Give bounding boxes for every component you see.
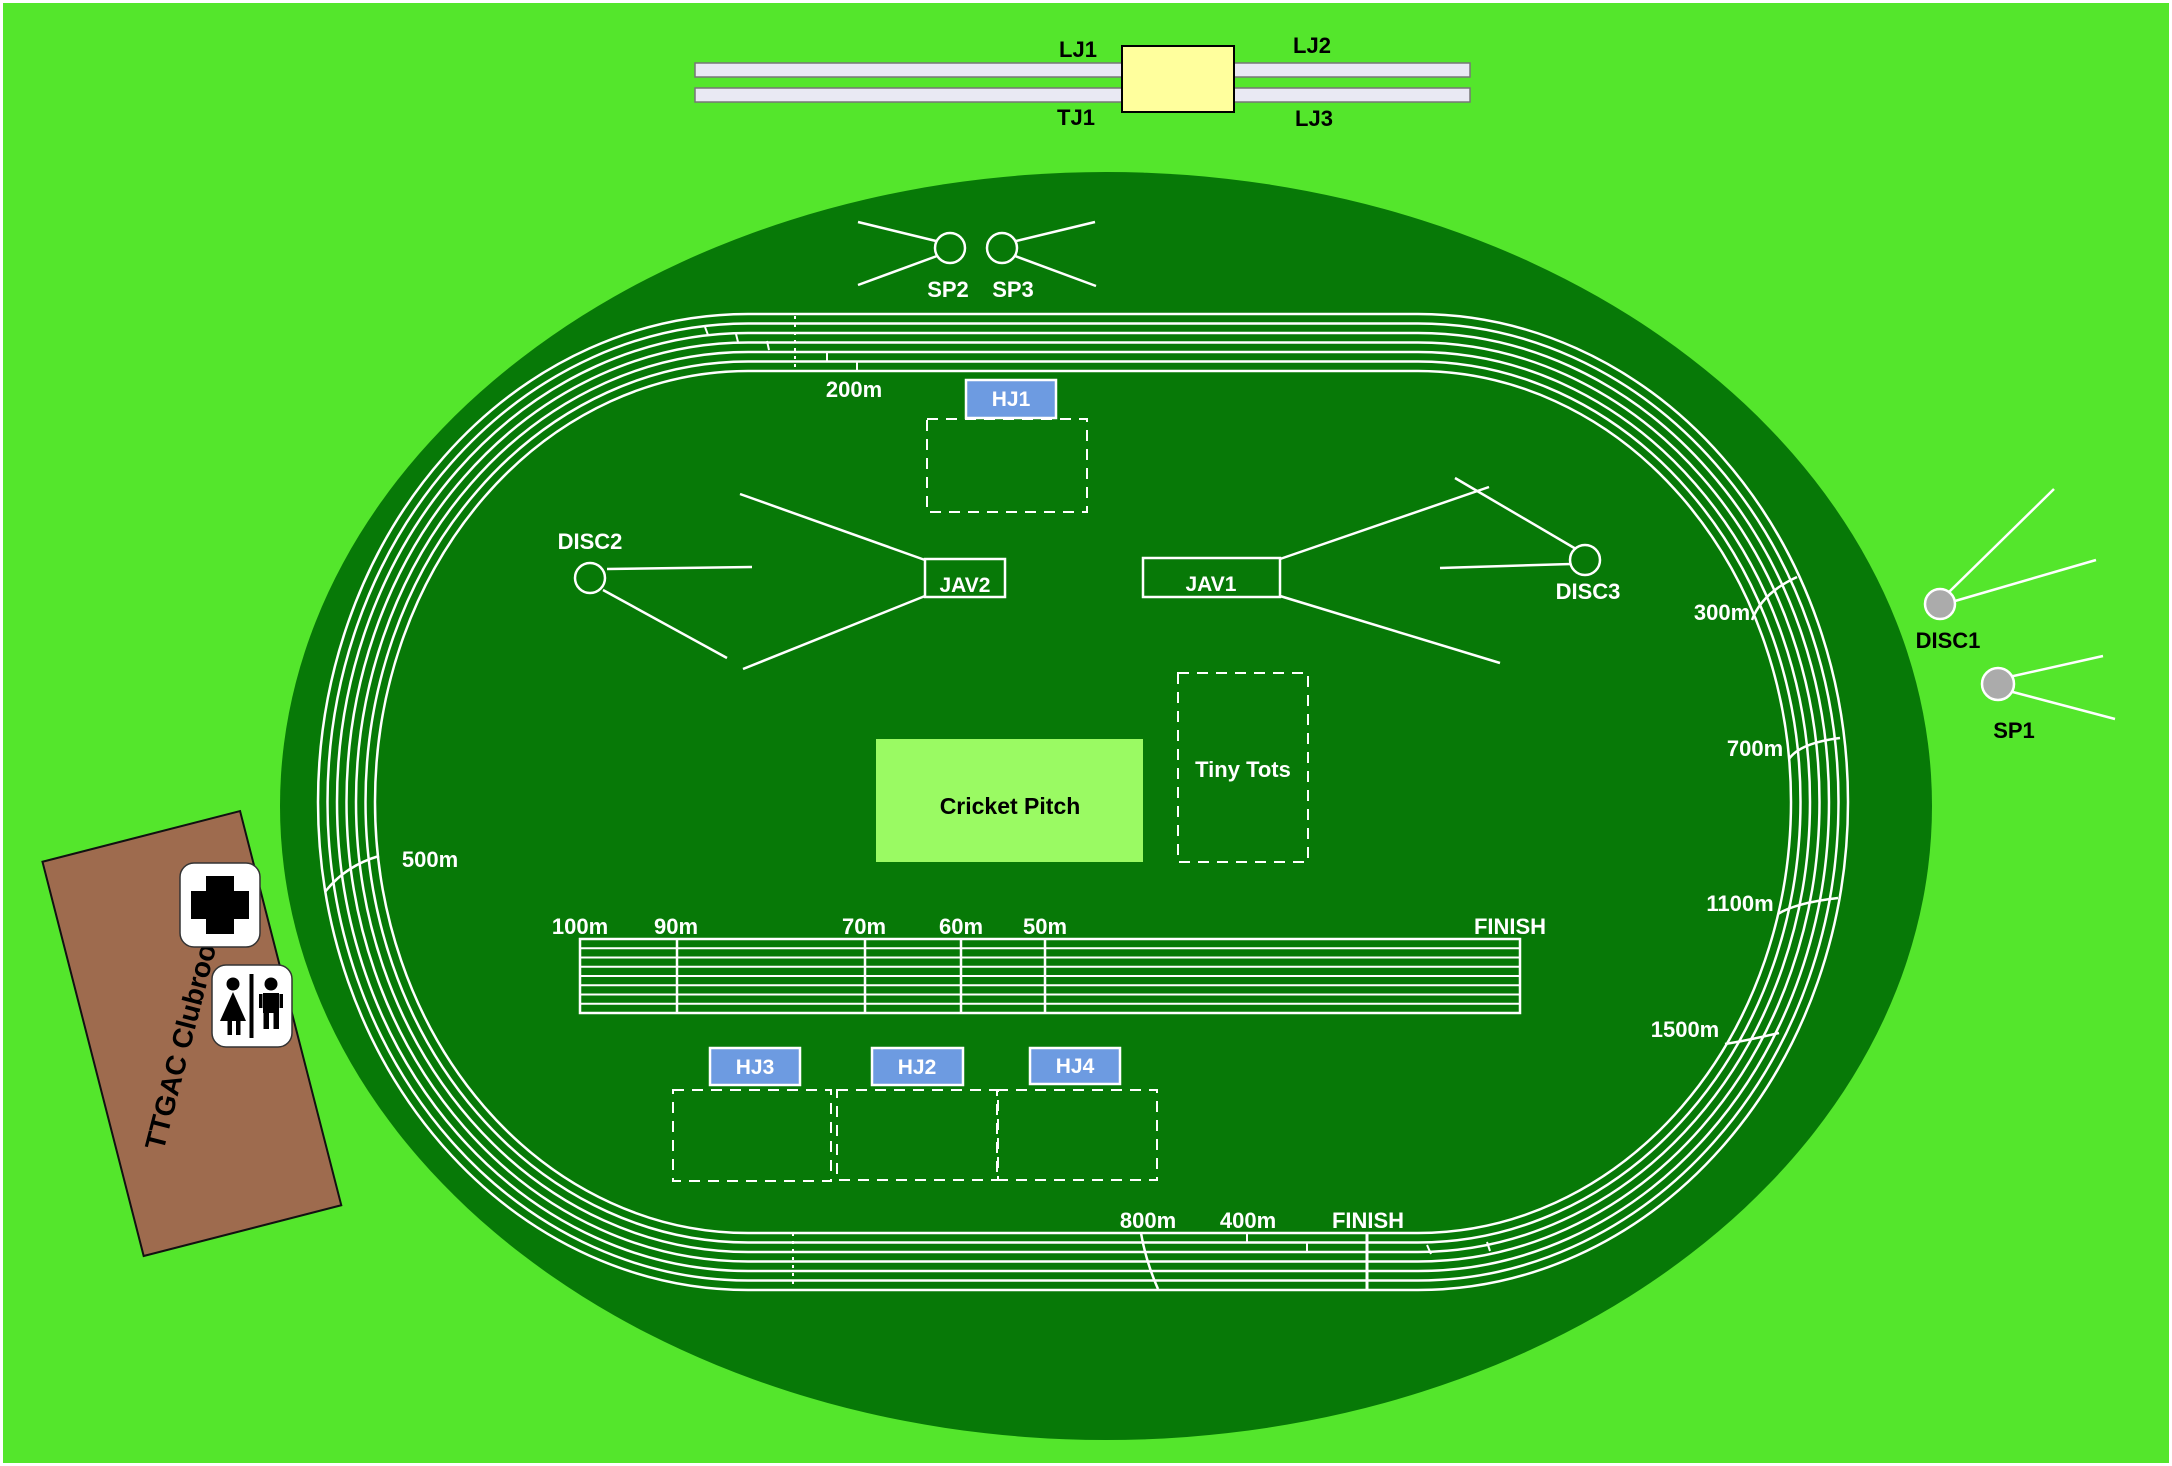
label-jav2: JAV2 xyxy=(940,574,991,597)
label-tj1: TJ1 xyxy=(1057,105,1095,130)
sprint-lane-lines xyxy=(580,948,1520,1004)
sprint-mark-100m: 100m xyxy=(552,914,608,939)
toilets-sign xyxy=(212,965,292,1047)
label-cricket-pitch: Cricket Pitch xyxy=(940,793,1081,819)
long-jump-runway-top xyxy=(695,63,1470,77)
label-hj3: HJ3 xyxy=(736,1056,775,1079)
label-hj2: HJ2 xyxy=(898,1056,937,1079)
toilets-icon xyxy=(220,974,283,1038)
sprint-mark-60m: 60m xyxy=(939,914,983,939)
label-lj3: LJ3 xyxy=(1295,106,1333,131)
facility-map-canvas: 200m 500m 300m 700m 1100m 1500m 800m 400… xyxy=(0,0,2172,1466)
mark-finish-oval: FINISH xyxy=(1332,1208,1404,1233)
shot-put-circle-icon xyxy=(1982,668,2014,700)
label-tiny-tots: Tiny Tots xyxy=(1195,757,1291,782)
label-hj1: HJ1 xyxy=(992,388,1031,411)
label-hj4: HJ4 xyxy=(1056,1055,1095,1078)
mark-500m: 500m xyxy=(402,847,458,872)
label-sp1: SP1 xyxy=(1993,718,2035,743)
sprint-mark-70m: 70m xyxy=(842,914,886,939)
mark-1100m: 1100m xyxy=(1706,891,1773,916)
athletics-facility-map: 200m 500m 300m 700m 1100m 1500m 800m 400… xyxy=(0,0,2172,1466)
label-jav1: JAV1 xyxy=(1186,573,1237,596)
sprint-mark-finish: FINISH xyxy=(1474,914,1546,939)
label-sp2: SP2 xyxy=(927,277,969,302)
mark-700m: 700m xyxy=(1727,736,1783,761)
first-aid-sign xyxy=(180,863,260,947)
mark-400m: 400m xyxy=(1220,1208,1276,1233)
label-disc2: DISC2 xyxy=(558,529,623,554)
mark-1500m: 1500m xyxy=(1651,1017,1720,1042)
sprint-mark-50m: 50m xyxy=(1023,914,1067,939)
label-lj1: LJ1 xyxy=(1059,37,1097,62)
sprint-mark-90m: 90m xyxy=(654,914,698,939)
discus-circle-icon xyxy=(1925,589,1955,619)
label-disc1: DISC1 xyxy=(1916,628,1981,653)
sand-pit xyxy=(1122,46,1234,112)
long-jump-runway-bottom xyxy=(695,88,1470,102)
label-lj2: LJ2 xyxy=(1293,33,1331,58)
label-disc3: DISC3 xyxy=(1556,579,1621,604)
label-sp3: SP3 xyxy=(992,277,1034,302)
mark-800m: 800m xyxy=(1120,1208,1176,1233)
mark-300m: 300m xyxy=(1694,600,1750,625)
mark-200m: 200m xyxy=(826,377,882,402)
